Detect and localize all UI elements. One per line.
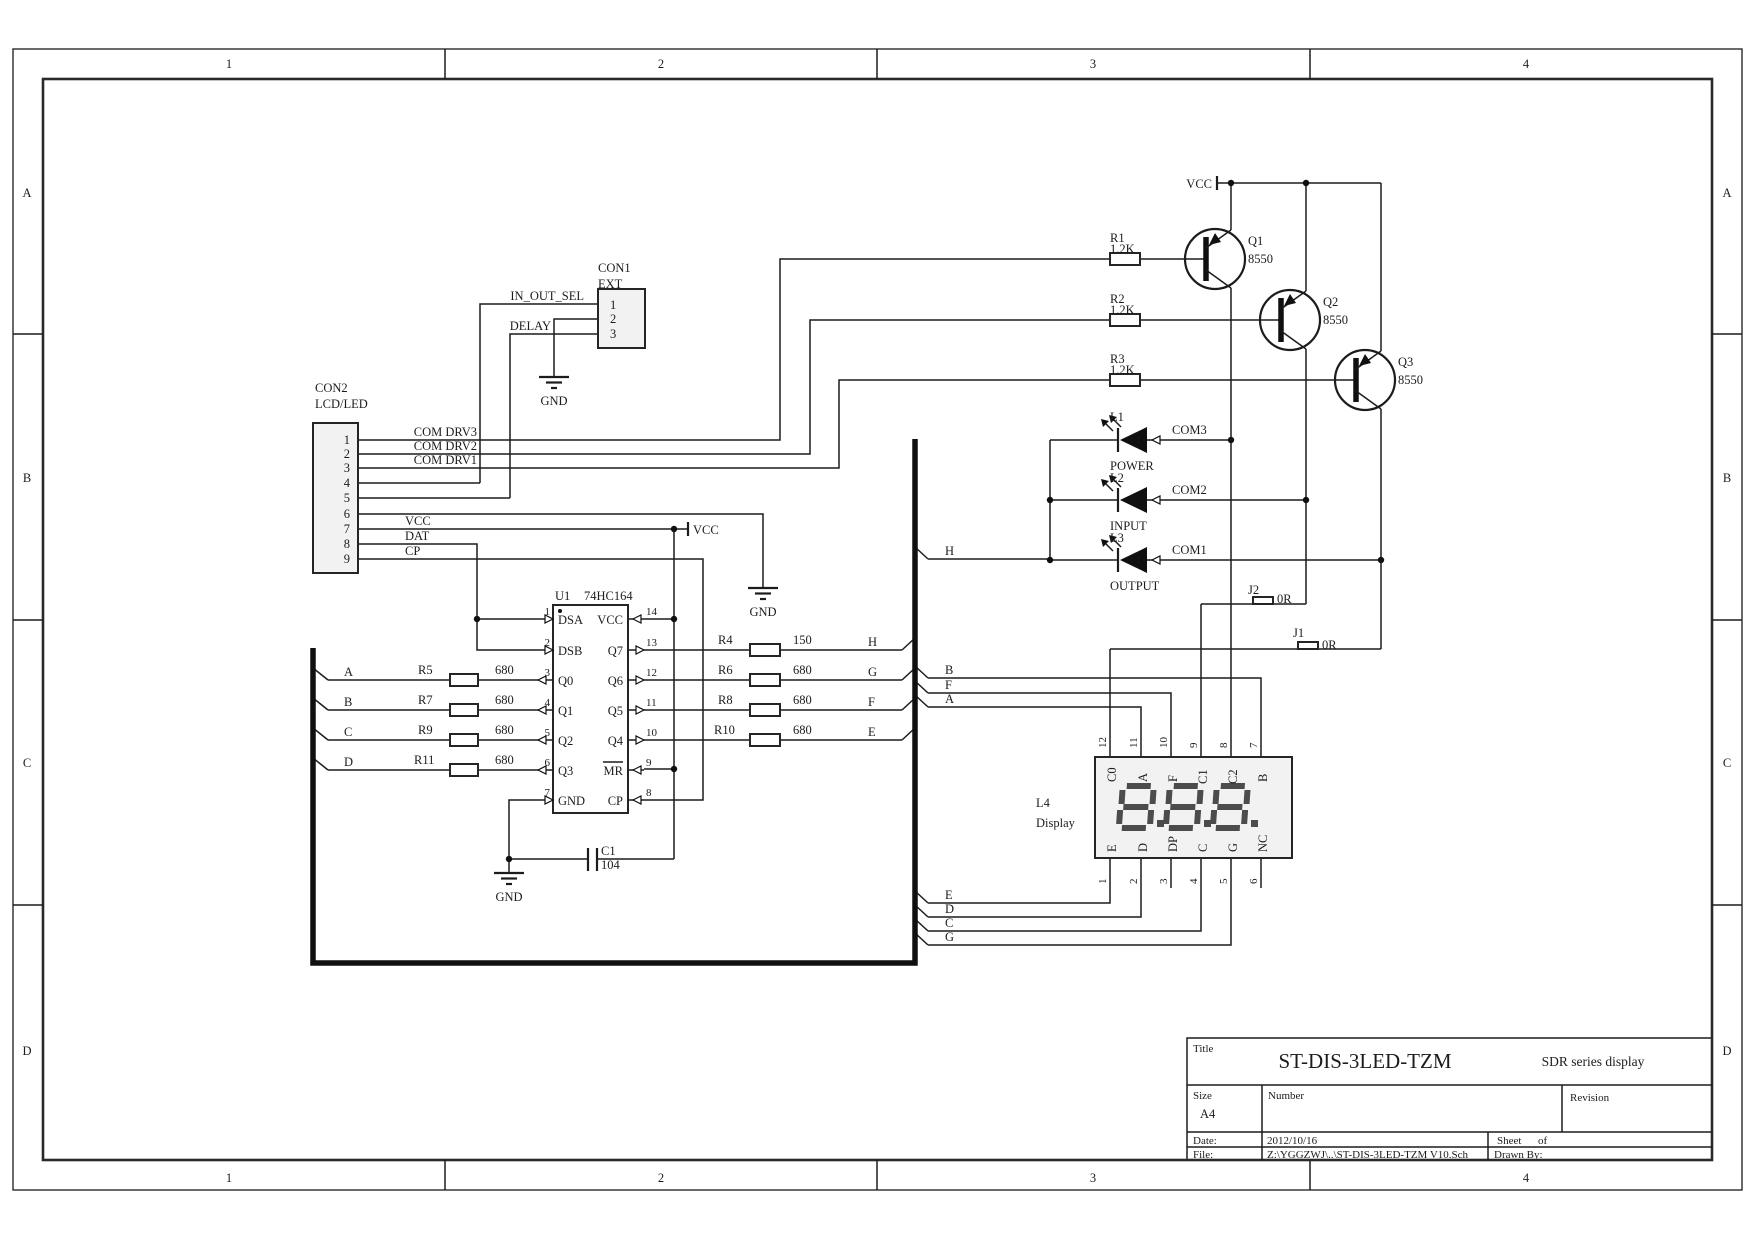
con1-pin: 1 — [610, 298, 616, 312]
u1-pin-name: MR — [604, 764, 624, 778]
l4-name: Display — [1036, 816, 1076, 830]
frame-row-label: D — [1722, 1044, 1731, 1058]
j1-ref: J1 — [1293, 626, 1304, 640]
gnd-label: GND — [495, 890, 522, 904]
file-value: Z:\YGGZWJ\..\ST-DIS-3LED-TZM V10.Sch — [1267, 1149, 1469, 1161]
drawn-by-label: Drawn By: — [1494, 1149, 1543, 1161]
frame-row-label: A — [1722, 186, 1731, 200]
l4-pin-number: 11 — [1128, 737, 1140, 748]
l4-pin-number: 4 — [1188, 878, 1200, 884]
j1-value: 0R — [1322, 638, 1337, 652]
frame-row-label: D — [22, 1044, 31, 1058]
l4-pin-name: D — [1136, 843, 1150, 852]
con2-name: LCD/LED — [315, 397, 368, 411]
l4-pin-name: G — [1226, 843, 1240, 852]
u1-pin-name: Q3 — [558, 764, 573, 778]
gnd-symbol-u1: GND — [494, 859, 524, 904]
resistor-r3: R31.2K — [1110, 352, 1140, 386]
svg-text:150: 150 — [793, 633, 812, 647]
svg-text:680: 680 — [495, 693, 514, 707]
l4-pin-number: 10 — [1158, 737, 1170, 749]
svg-text:R4: R4 — [718, 633, 733, 647]
u1-pin-name: DSB — [558, 644, 582, 658]
svg-text:R7: R7 — [418, 693, 433, 707]
resistor-r7: R7680 — [418, 693, 514, 716]
u1-pin-name: Q7 — [608, 644, 623, 658]
number-label: Number — [1268, 1090, 1304, 1102]
net-label-in-out-sel: IN_OUT_SEL — [510, 289, 584, 303]
title-block: Title ST-DIS-3LED-TZM SDR series display… — [1187, 1038, 1712, 1161]
l4-ref: L4 — [1036, 796, 1051, 810]
resistor-r4: R4150 — [718, 633, 812, 656]
bus-net-labels: A B C D H G F E H B F A E D C G — [344, 544, 954, 944]
net-label-com-drv3: COM DRV3 — [414, 425, 477, 439]
svg-text:R8: R8 — [718, 693, 733, 707]
l4-pin-name: B — [1256, 774, 1270, 782]
l2-ref: L2 — [1110, 471, 1124, 485]
u1-pin-number: 13 — [646, 637, 658, 649]
resistors: R11.2K R21.2K R31.2K R4150 R6680 R8680 R… — [414, 231, 1140, 776]
frame-row-label: B — [1723, 471, 1731, 485]
l4-pin-name: DP — [1166, 836, 1180, 852]
bus-exit-label: E — [945, 888, 953, 902]
c1-value: 104 — [601, 858, 621, 872]
bus-entry-label: G — [868, 665, 877, 679]
sheet-border: 1 2 3 4 1 2 3 4 A B C D A B C D — [13, 49, 1742, 1190]
frame-col-label: 3 — [1090, 1171, 1096, 1185]
l4-pin-number: 5 — [1218, 878, 1230, 884]
frame-col-label: 4 — [1523, 1171, 1530, 1185]
net-label-vcc: VCC — [405, 514, 431, 528]
u1-pin-name: VCC — [597, 613, 623, 627]
title-label: Title — [1193, 1043, 1214, 1055]
u1-pin-number: 8 — [646, 787, 652, 799]
frame-row-label: C — [23, 756, 31, 770]
sheet-title: ST-DIS-3LED-TZM — [1278, 1049, 1451, 1073]
jumper-j1: J1 0R — [1293, 626, 1337, 652]
u1-pin-number: 5 — [545, 727, 551, 739]
l4-pin-name: C0 — [1105, 767, 1119, 782]
l1-net: COM3 — [1172, 423, 1207, 437]
l2-net: COM2 — [1172, 483, 1207, 497]
u1-pin-name: CP — [608, 794, 623, 808]
con1-name: EXT — [598, 277, 623, 291]
u1-pin-number: 12 — [646, 667, 657, 679]
svg-text:1.2K: 1.2K — [1110, 363, 1135, 377]
size-value: A4 — [1200, 1107, 1216, 1121]
resistor-r9: R9680 — [418, 723, 514, 746]
u1-pin-name: Q4 — [608, 734, 624, 748]
bus-entry-label: C — [344, 725, 352, 739]
l4-pin-name: C2 — [1226, 769, 1240, 784]
u1-pin-number: 1 — [545, 606, 551, 618]
con2-pin: 8 — [344, 537, 350, 551]
frame-col-label: 2 — [658, 57, 664, 71]
l1-ref: L1 — [1110, 410, 1124, 424]
svg-text:1.2K: 1.2K — [1110, 242, 1135, 256]
resistor-r11: R11680 — [414, 753, 514, 776]
q3-ref: Q3 — [1398, 355, 1413, 369]
con2-pin: 5 — [344, 491, 350, 505]
svg-text:680: 680 — [495, 753, 514, 767]
gnd-symbol-con2: GND — [748, 588, 778, 619]
vcc-label: VCC — [693, 523, 719, 537]
resistor-r6: R6680 — [718, 663, 812, 686]
u1-pin-number: 7 — [545, 787, 551, 799]
u1-pin-number: 3 — [545, 667, 551, 679]
j2-value: 0R — [1277, 592, 1292, 606]
vcc-label: VCC — [1186, 177, 1212, 191]
l4-pin-name: C1 — [1196, 769, 1210, 784]
u1-pin-name: Q6 — [608, 674, 623, 688]
con2-pin: 7 — [344, 522, 350, 536]
bus-entry-label: A — [344, 665, 353, 679]
j2-ref: J2 — [1248, 583, 1259, 597]
date-label: Date: — [1193, 1135, 1217, 1147]
con2-pin: 2 — [344, 447, 350, 461]
q2-part: 8550 — [1323, 313, 1348, 327]
resistor-r10: R10680 — [714, 723, 812, 746]
vcc-port-rail: VCC — [1186, 176, 1217, 191]
bus-exit-label: G — [945, 930, 954, 944]
net-label-cp: CP — [405, 544, 420, 558]
led-l3: L3 COM1 OUTPUT — [1101, 531, 1207, 593]
l4-pin-number: 9 — [1188, 742, 1200, 748]
svg-text:680: 680 — [793, 663, 812, 677]
resistor-r5: R5680 — [418, 663, 514, 686]
con2-ref: CON2 — [315, 381, 348, 395]
svg-text:R10: R10 — [714, 723, 735, 737]
svg-text:1.2K: 1.2K — [1110, 303, 1135, 317]
sheet-label: Sheet — [1497, 1135, 1521, 1147]
gnd-label: GND — [749, 605, 776, 619]
u1-pin-name: Q0 — [558, 674, 573, 688]
u1-pin-name: Q5 — [608, 704, 623, 718]
u1-part: 74HC164 — [584, 589, 633, 603]
frame-col-label: 3 — [1090, 57, 1096, 71]
u1-pin-number: 10 — [646, 727, 658, 739]
display-l4: L4 Display 12 11 10 9 8 7 C0 A F C1 C2 B… — [1036, 737, 1292, 885]
u1-pin-number: 11 — [646, 697, 657, 709]
l4-pin-name: NC — [1256, 835, 1270, 852]
u1-pin-name: Q2 — [558, 734, 573, 748]
gnd-symbol-con1: GND — [539, 377, 569, 408]
u1-ref: U1 — [555, 589, 570, 603]
l4-pin-number: 6 — [1248, 878, 1260, 884]
u1-pin-name: Q1 — [558, 704, 573, 718]
l3-name: OUTPUT — [1110, 579, 1160, 593]
bus-exit-label: D — [945, 902, 954, 916]
l4-pin-name: F — [1166, 775, 1180, 782]
bus-entry-label: H — [868, 635, 877, 649]
frame-col-label: 1 — [226, 1171, 232, 1185]
con1-body — [598, 289, 645, 348]
con1-ref: CON1 — [598, 261, 631, 275]
net-label-dat: DAT — [405, 529, 430, 543]
vcc-port-con2: VCC — [688, 522, 719, 537]
svg-text:680: 680 — [793, 723, 812, 737]
svg-text:680: 680 — [495, 723, 514, 737]
l4-pin-number: 3 — [1158, 878, 1170, 884]
svg-text:R9: R9 — [418, 723, 433, 737]
sheet-of-label: of — [1538, 1135, 1548, 1147]
net-label-com-drv2: COM DRV2 — [414, 439, 477, 453]
frame-col-label: 4 — [1523, 57, 1530, 71]
u1-pin-name: DSA — [558, 613, 583, 627]
file-label: File: — [1193, 1149, 1213, 1161]
frame-col-label: 2 — [658, 1171, 664, 1185]
ic-u1-74hc164: U1 74HC164 1 2 — [537, 589, 658, 813]
bus-entry-label: D — [344, 755, 353, 769]
date-value: 2012/10/16 — [1267, 1135, 1318, 1147]
led-l1: L1 COM3 POWER — [1101, 410, 1207, 473]
con2-pin: 4 — [344, 476, 351, 490]
q3-part: 8550 — [1398, 373, 1423, 387]
con2-body — [313, 423, 358, 573]
capacitor-c1: C1 104 — [588, 844, 621, 872]
net-label-delay: DELAY — [510, 319, 551, 333]
net-label-com-drv1: COM DRV1 — [414, 453, 477, 467]
con1-pin: 3 — [610, 327, 616, 341]
led-l2: L2 COM2 INPUT — [1101, 471, 1207, 533]
u1-pin-number: 6 — [545, 757, 551, 769]
u1-pin-number: 2 — [545, 637, 551, 649]
l4-pin-number: 8 — [1218, 742, 1230, 748]
con1-pin: 2 — [610, 312, 616, 326]
frame-row-label: C — [1723, 756, 1731, 770]
frame-col-label: 1 — [226, 57, 232, 71]
svg-text:R11: R11 — [414, 753, 434, 767]
bus-entry-label: B — [344, 695, 352, 709]
resistor-r2: R21.2K — [1110, 292, 1140, 326]
bus-exit-label: H — [945, 544, 954, 558]
bus-exit-label: B — [945, 663, 953, 677]
l4-pin-number: 12 — [1097, 737, 1109, 748]
sheet-subtitle: SDR series display — [1542, 1054, 1645, 1069]
size-label: Size — [1193, 1090, 1212, 1102]
u1-pin-number: 14 — [646, 606, 658, 618]
u1-pin-name: GND — [558, 794, 585, 808]
q1-ref: Q1 — [1248, 234, 1263, 248]
svg-text:680: 680 — [495, 663, 514, 677]
bus-entry-label: E — [868, 725, 876, 739]
svg-text:R5: R5 — [418, 663, 433, 677]
revision-label: Revision — [1570, 1092, 1610, 1104]
bus-exit-label: A — [945, 692, 954, 706]
l4-pin-name: A — [1136, 773, 1150, 782]
schematic-sheet: 1 2 3 4 1 2 3 4 A B C D A B C D — [0, 0, 1755, 1240]
svg-text:680: 680 — [793, 693, 812, 707]
bus-exit-label: C — [945, 916, 953, 930]
l4-pin-number: 7 — [1248, 742, 1260, 748]
bus-exit-label: F — [945, 678, 952, 692]
con2-pin: 6 — [344, 507, 350, 521]
resistor-r8: R8680 — [718, 693, 812, 716]
q2-ref: Q2 — [1323, 295, 1338, 309]
frame-row-label: B — [23, 471, 31, 485]
con2-pin: 1 — [344, 433, 350, 447]
bus-entry-label: F — [868, 695, 875, 709]
con2-pin: 9 — [344, 552, 350, 566]
l4-pin-number: 1 — [1097, 879, 1109, 885]
l4-pin-name: E — [1105, 844, 1119, 852]
l3-net: COM1 — [1172, 543, 1207, 557]
svg-text:R6: R6 — [718, 663, 733, 677]
jumper-j2: J2 0R — [1248, 583, 1292, 606]
resistor-r1: R11.2K — [1110, 231, 1140, 265]
u1-pin-number: 9 — [646, 757, 652, 769]
l4-pin-name: C — [1196, 844, 1210, 852]
gnd-label: GND — [540, 394, 567, 408]
l4-pin-number: 2 — [1128, 879, 1140, 885]
q1-part: 8550 — [1248, 252, 1273, 266]
frame-row-label: A — [22, 186, 31, 200]
l3-ref: L3 — [1110, 531, 1124, 545]
con2-pin: 3 — [344, 461, 350, 475]
c1-ref: C1 — [601, 844, 616, 858]
u1-pin-number: 4 — [545, 697, 551, 709]
